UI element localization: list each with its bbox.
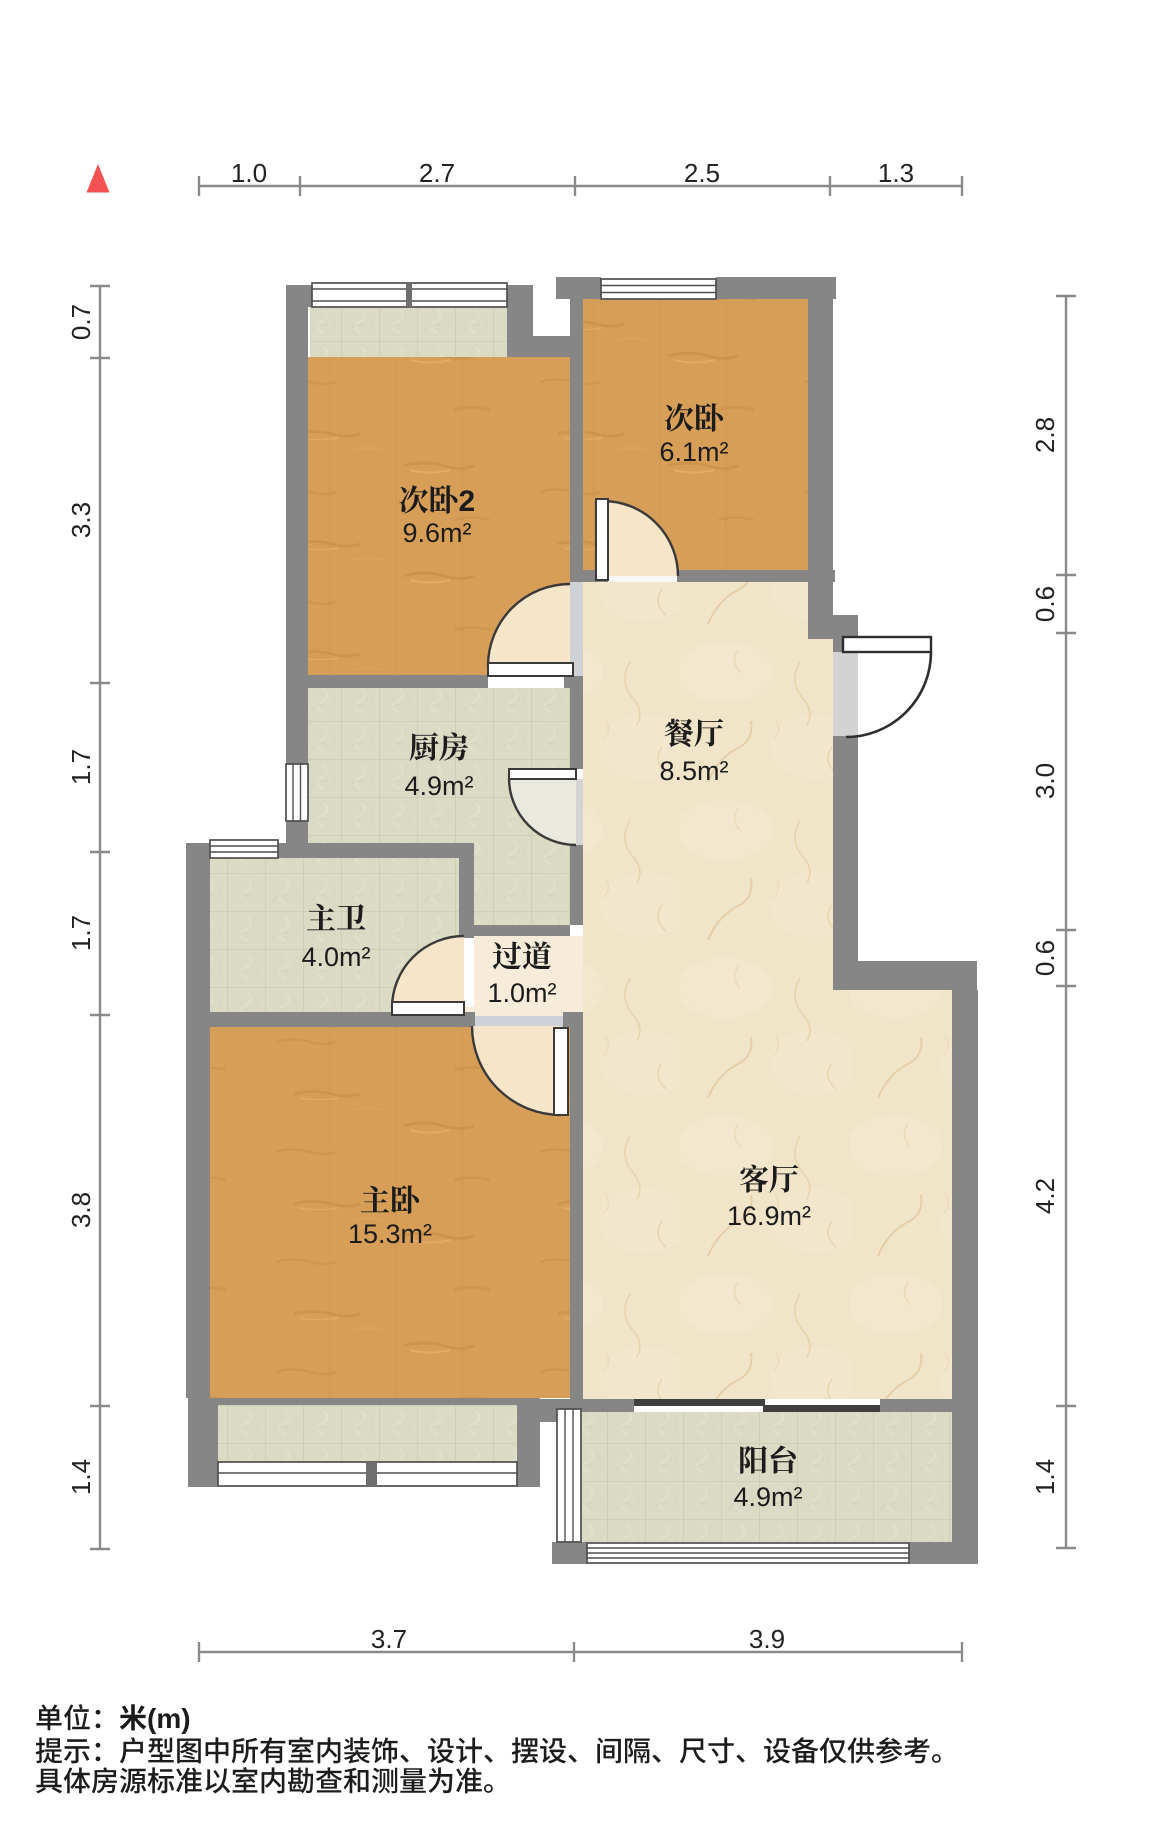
svg-text:8.5m²: 8.5m² (659, 756, 728, 786)
svg-text:4.0m²: 4.0m² (301, 942, 370, 972)
svg-text:3.3: 3.3 (66, 502, 96, 538)
svg-text:4.2: 4.2 (1030, 1178, 1060, 1214)
svg-text:0.7: 0.7 (66, 304, 96, 340)
svg-text:2: 2 (459, 485, 476, 518)
svg-text:0.6: 0.6 (1030, 940, 1060, 976)
svg-text:3.0: 3.0 (1030, 763, 1060, 799)
svg-text:1.4: 1.4 (66, 1459, 96, 1495)
svg-text:3.8: 3.8 (66, 1192, 96, 1228)
svg-text:3.9: 3.9 (749, 1624, 785, 1654)
svg-text:9.6m²: 9.6m² (402, 518, 471, 548)
svg-text:6.1m²: 6.1m² (659, 437, 728, 467)
svg-text:2.8: 2.8 (1030, 417, 1060, 453)
svg-text:(m): (m) (147, 1703, 191, 1734)
svg-text:1.4: 1.4 (1030, 1459, 1060, 1495)
svg-text:16.9m²: 16.9m² (727, 1201, 811, 1231)
svg-text:1.7: 1.7 (66, 915, 96, 951)
svg-text:2.5: 2.5 (684, 158, 720, 188)
svg-text:1.7: 1.7 (66, 749, 96, 785)
svg-text:1.3: 1.3 (878, 158, 914, 188)
svg-text:1.0: 1.0 (231, 158, 267, 188)
svg-text:4.9m²: 4.9m² (733, 1482, 802, 1512)
svg-text:2.7: 2.7 (419, 158, 455, 188)
svg-text:0.6: 0.6 (1030, 586, 1060, 622)
svg-text:4.9m²: 4.9m² (404, 771, 473, 801)
svg-text:3.7: 3.7 (371, 1624, 407, 1654)
svg-text:1.0m²: 1.0m² (487, 978, 556, 1008)
svg-text:15.3m²: 15.3m² (348, 1219, 432, 1249)
